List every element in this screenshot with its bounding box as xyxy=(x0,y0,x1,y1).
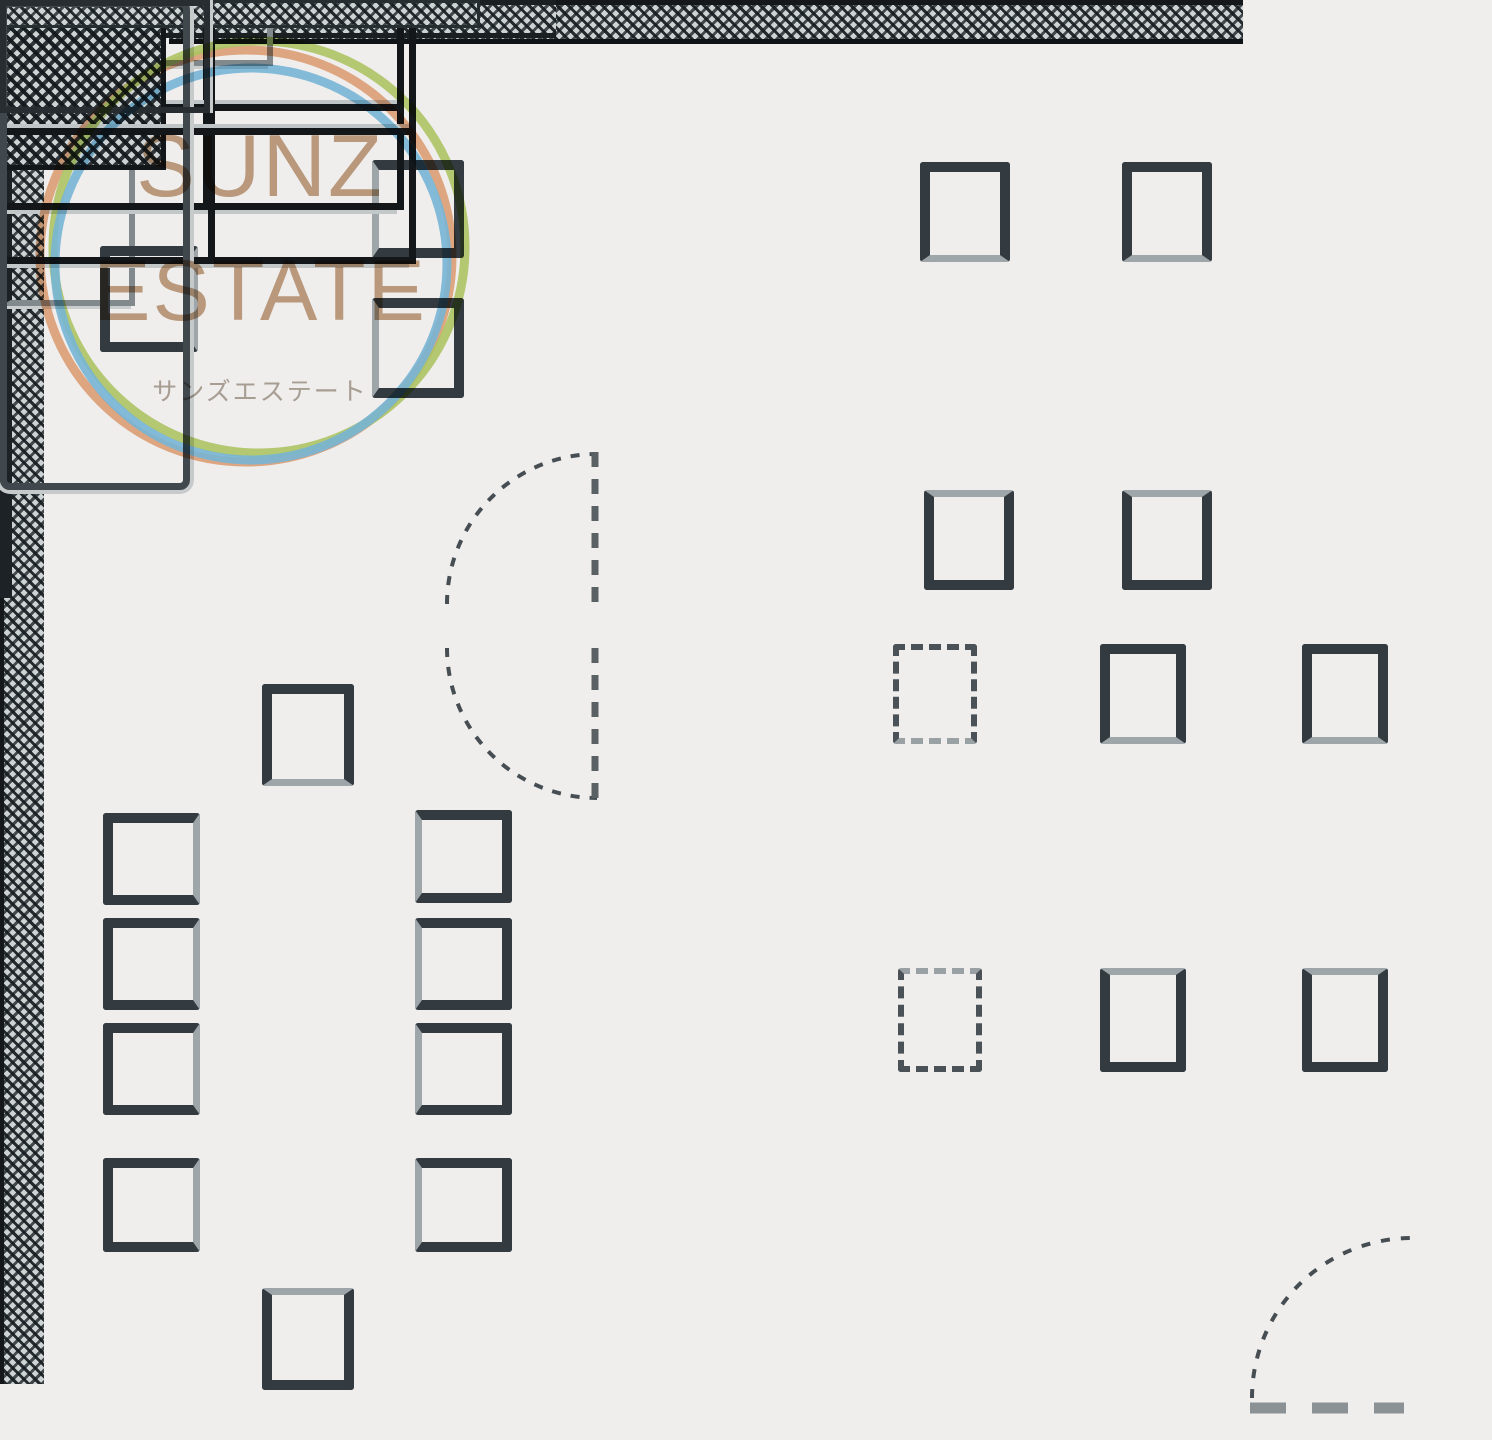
planned-chair xyxy=(893,644,977,744)
office-chair xyxy=(1100,968,1186,1072)
planned-chair xyxy=(898,968,982,1072)
base-cabinet xyxy=(0,0,210,113)
meeting-chair xyxy=(103,813,200,905)
office-chair xyxy=(1122,162,1212,262)
meeting-chair xyxy=(103,918,200,1010)
meeting-chair xyxy=(415,1158,512,1252)
office-chair xyxy=(1100,644,1186,744)
meeting-chair xyxy=(262,1288,354,1390)
meeting-chair xyxy=(262,684,354,786)
door-swing-arc-top xyxy=(447,454,597,604)
door-swing-arc-entrance xyxy=(1252,1238,1412,1398)
meeting-chair xyxy=(415,1023,512,1115)
office-chair xyxy=(924,490,1014,590)
office-chair xyxy=(1122,490,1212,590)
floor-plan-canvas: SUNZ ESTATE サンズエステート xyxy=(0,0,1492,1440)
meeting-chair xyxy=(103,1158,200,1252)
guest-chair xyxy=(372,298,464,398)
office-chair xyxy=(920,162,1010,262)
door-swing-arc-bottom xyxy=(447,648,597,798)
meeting-chair xyxy=(103,1023,200,1115)
meeting-chair xyxy=(415,810,512,903)
office-chair xyxy=(1302,644,1388,744)
meeting-chair xyxy=(415,918,512,1010)
office-chair xyxy=(1302,968,1388,1072)
